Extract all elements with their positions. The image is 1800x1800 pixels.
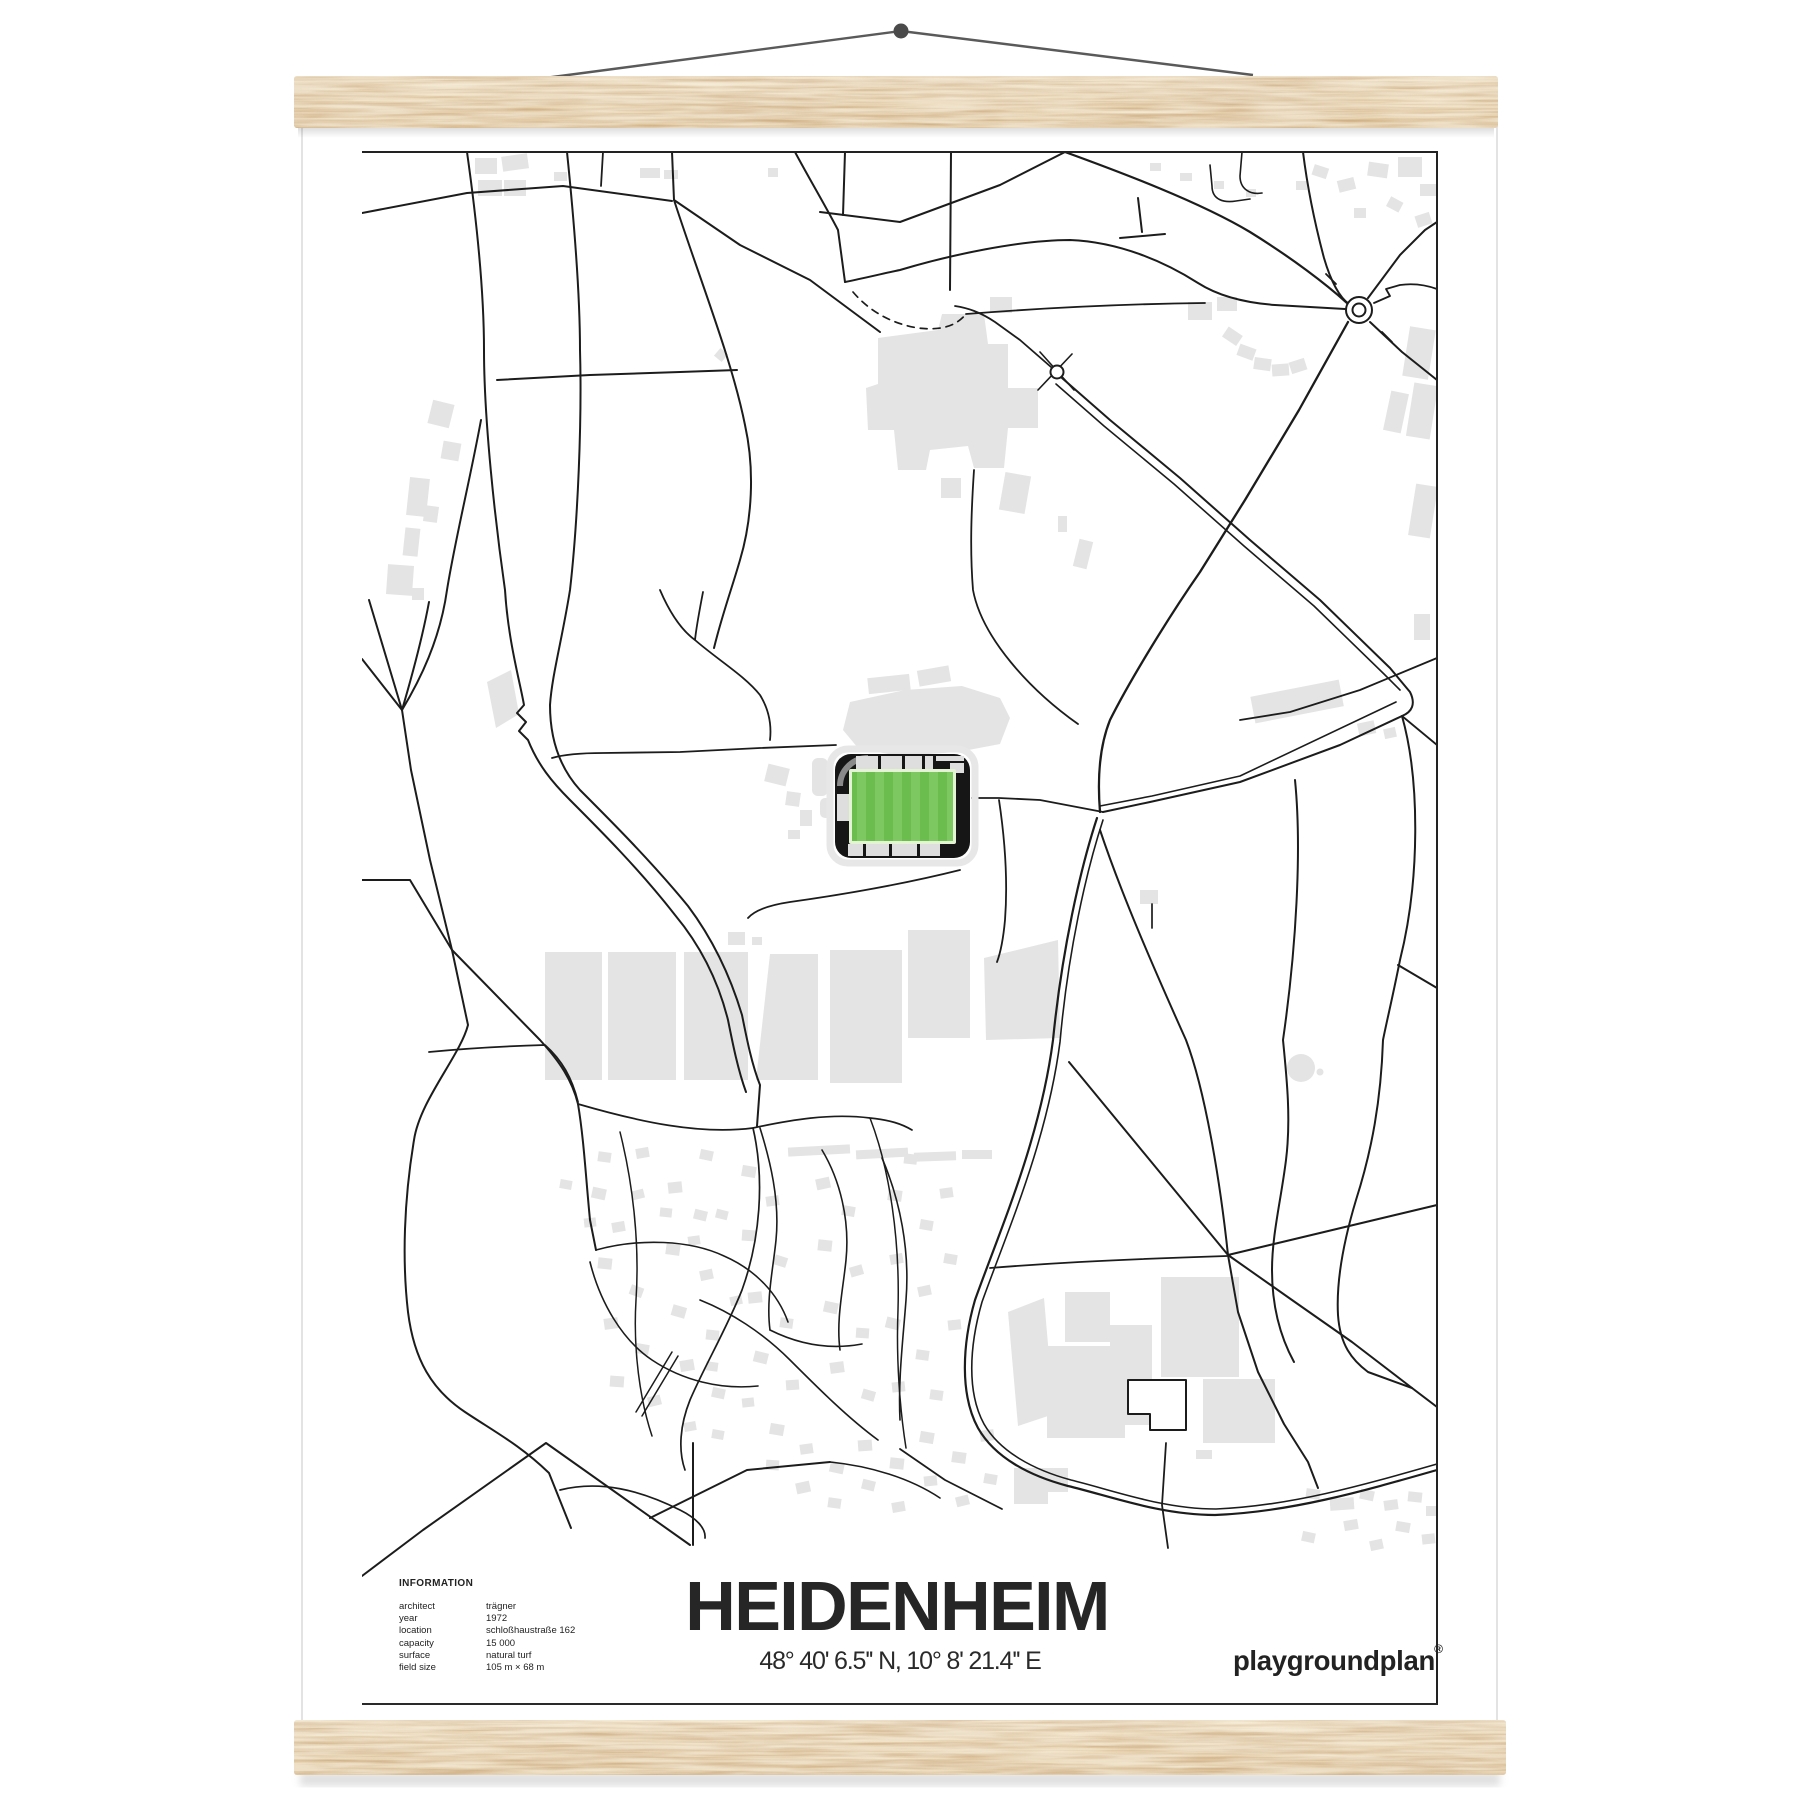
svg-text:INFORMATION: INFORMATION — [399, 1578, 473, 1589]
svg-text:surface: surface — [399, 1650, 430, 1661]
svg-text:year: year — [399, 1613, 417, 1624]
svg-text:trägner: trägner — [486, 1601, 516, 1612]
svg-text:HEIDENHEIM: HEIDENHEIM — [685, 1567, 1108, 1645]
svg-text:field size: field size — [399, 1662, 436, 1673]
svg-text:location: location — [399, 1625, 432, 1636]
svg-text:15 000: 15 000 — [486, 1638, 515, 1649]
svg-text:48° 40' 6.5'' N, 10° 8' 21.4'': 48° 40' 6.5'' N, 10° 8' 21.4'' E — [759, 1647, 1041, 1675]
svg-text:1972: 1972 — [486, 1613, 507, 1624]
svg-text:®: ® — [1434, 1642, 1443, 1656]
svg-text:schloßhaustraße 162: schloßhaustraße 162 — [486, 1625, 575, 1636]
svg-text:capacity: capacity — [399, 1638, 434, 1649]
svg-text:architect: architect — [399, 1601, 435, 1612]
svg-text:105 m × 68 m: 105 m × 68 m — [486, 1662, 544, 1673]
svg-text:playgroundplan: playgroundplan — [1233, 1645, 1435, 1676]
svg-text:natural turf: natural turf — [486, 1650, 532, 1661]
